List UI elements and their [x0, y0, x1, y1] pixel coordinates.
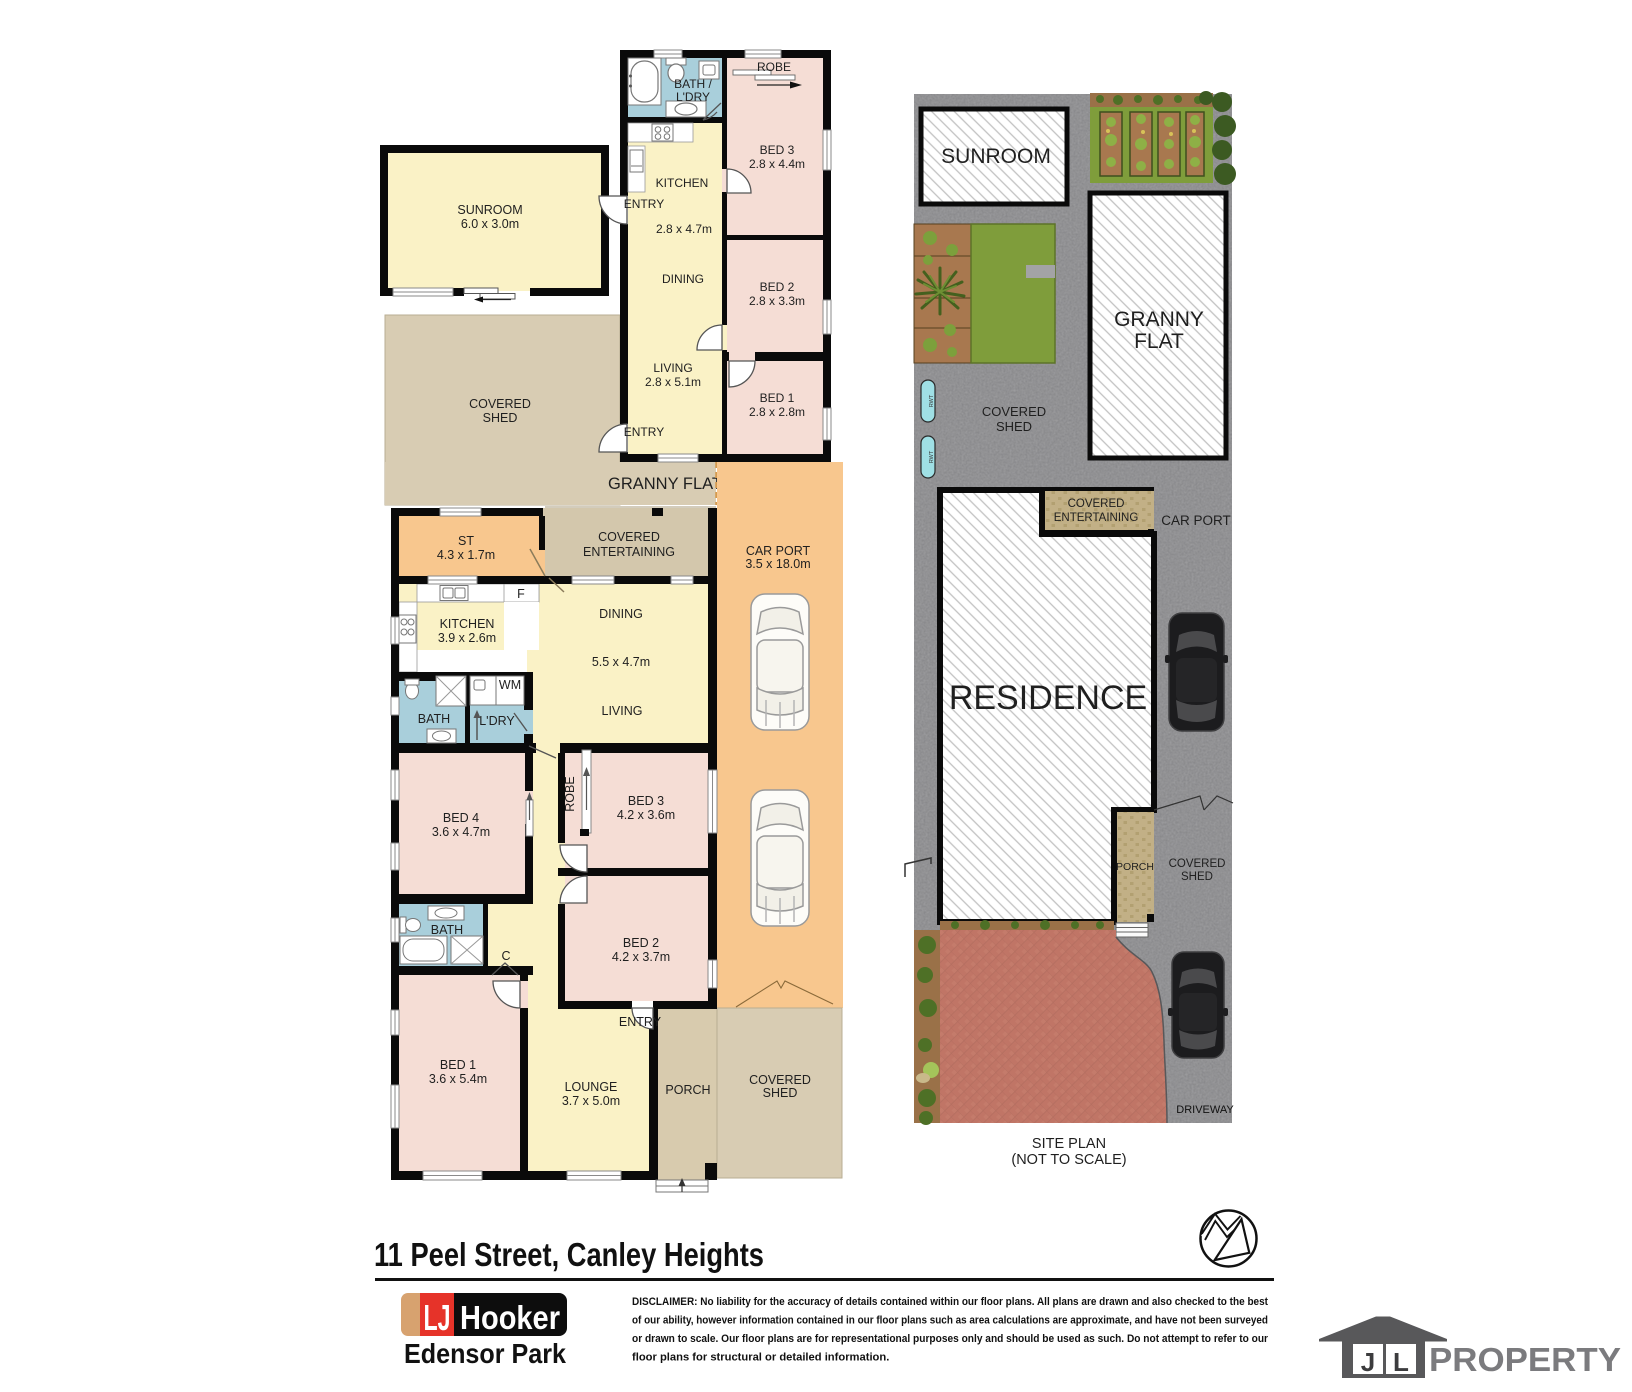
svg-text:ROBE: ROBE [563, 776, 577, 811]
svg-text:3.6 x 5.4m: 3.6 x 5.4m [429, 1072, 487, 1086]
svg-text:RWT: RWT [929, 394, 935, 407]
svg-text:SITE PLAN: SITE PLAN [1032, 1136, 1106, 1152]
svg-text:SUNROOM: SUNROOM [457, 203, 522, 217]
svg-text:COVERED: COVERED [982, 404, 1046, 419]
svg-text:GRANNY FLAT: GRANNY FLAT [608, 475, 722, 493]
svg-text:BATH: BATH [418, 712, 450, 726]
svg-text:BATH: BATH [431, 923, 463, 937]
svg-text:ENTERTAINING: ENTERTAINING [583, 545, 675, 559]
svg-text:LJ: LJ [424, 1297, 451, 1338]
svg-text:floor plans for structural or: floor plans for structural or detailed i… [632, 1352, 889, 1364]
svg-text:BED 1: BED 1 [440, 1058, 476, 1072]
svg-text:C: C [501, 949, 510, 963]
svg-text:4.2 x 3.7m: 4.2 x 3.7m [612, 950, 670, 964]
svg-text:ENTRY: ENTRY [624, 425, 664, 439]
svg-text:4.3 x 1.7m: 4.3 x 1.7m [437, 548, 495, 562]
svg-text:PORCH: PORCH [665, 1083, 710, 1097]
svg-text:3.6 x 4.7m: 3.6 x 4.7m [432, 825, 490, 839]
svg-text:L'DRY: L'DRY [479, 714, 515, 728]
svg-text:RWT: RWT [929, 450, 935, 463]
svg-text:3.5 x 18.0m: 3.5 x 18.0m [745, 557, 810, 571]
svg-text:or drawn to scale. Our floor p: or drawn to scale. Our floor plans are f… [632, 1333, 1269, 1345]
svg-text:COVERED: COVERED [469, 397, 531, 411]
svg-text:ST: ST [458, 534, 474, 548]
svg-text:DINING: DINING [599, 607, 643, 621]
svg-text:SHED: SHED [763, 1086, 798, 1100]
svg-text:GRANNY: GRANNY [1114, 308, 1204, 331]
svg-text:COVERED: COVERED [598, 530, 660, 544]
svg-text:J: J [1361, 1347, 1375, 1377]
svg-text:L'DRY: L'DRY [676, 90, 710, 104]
svg-text:SHED: SHED [996, 419, 1032, 434]
svg-text:5.5 x 4.7m: 5.5 x 4.7m [592, 655, 650, 669]
svg-text:BED 3: BED 3 [760, 143, 795, 157]
svg-text:BED 4: BED 4 [443, 811, 479, 825]
svg-text:RESIDENCE: RESIDENCE [949, 679, 1147, 717]
svg-text:DRIVEWAY: DRIVEWAY [1176, 1104, 1234, 1116]
svg-text:SHED: SHED [483, 411, 518, 425]
svg-text:FLAT: FLAT [1134, 330, 1184, 353]
svg-text:2.8 x 4.4m: 2.8 x 4.4m [749, 157, 805, 171]
svg-text:DINING: DINING [662, 272, 704, 286]
svg-text:LOUNGE: LOUNGE [565, 1080, 618, 1094]
svg-text:2.8 x 4.7m: 2.8 x 4.7m [656, 222, 712, 236]
svg-text:COVERED: COVERED [749, 1073, 811, 1087]
svg-text:COVERED: COVERED [1068, 498, 1125, 510]
svg-text:BED 2: BED 2 [623, 936, 659, 950]
svg-text:BATH /: BATH / [674, 77, 712, 91]
svg-text:3.9 x 2.6m: 3.9 x 2.6m [438, 631, 496, 645]
svg-text:Edensor Park: Edensor Park [404, 1338, 566, 1369]
svg-text:PROPERTY: PROPERTY [1429, 1342, 1621, 1379]
svg-text:ROBE: ROBE [757, 60, 791, 74]
svg-text:ENTRY: ENTRY [619, 1015, 662, 1029]
svg-text:2.8 x 3.3m: 2.8 x 3.3m [749, 294, 805, 308]
svg-text:2.8 x 5.1m: 2.8 x 5.1m [645, 375, 701, 389]
svg-text:COVERED: COVERED [1169, 858, 1226, 870]
svg-text:BED 3: BED 3 [628, 794, 664, 808]
svg-text:KITCHEN: KITCHEN [656, 176, 709, 190]
svg-text:6.0 x 3.0m: 6.0 x 3.0m [461, 217, 519, 231]
svg-text:BED 2: BED 2 [760, 280, 795, 294]
svg-text:DISCLAIMER: No liability for t: DISCLAIMER: No liability for the accurac… [632, 1296, 1268, 1308]
svg-text:(NOT TO SCALE): (NOT TO SCALE) [1011, 1152, 1126, 1168]
svg-text:Hooker: Hooker [460, 1299, 560, 1336]
svg-text:LIVING: LIVING [602, 704, 643, 718]
svg-text:F: F [517, 587, 525, 601]
svg-text:of our ability, however inform: of our ability, however information cont… [632, 1315, 1268, 1327]
svg-text:4.2 x 3.6m: 4.2 x 3.6m [617, 808, 675, 822]
svg-text:3.7 x 5.0m: 3.7 x 5.0m [562, 1094, 620, 1108]
svg-text:SUNROOM: SUNROOM [941, 145, 1051, 168]
svg-text:SHED: SHED [1181, 871, 1213, 883]
svg-text:BED 1: BED 1 [760, 391, 795, 405]
svg-text:L: L [1393, 1347, 1409, 1377]
svg-text:LIVING: LIVING [653, 361, 692, 375]
svg-text:ENTERTAINING: ENTERTAINING [1054, 512, 1139, 524]
svg-text:11 Peel Street, Canley Heights: 11 Peel Street, Canley Heights [374, 1236, 764, 1273]
svg-text:CAR PORT: CAR PORT [746, 544, 811, 558]
svg-text:KITCHEN: KITCHEN [440, 617, 495, 631]
svg-text:2.8 x 2.8m: 2.8 x 2.8m [749, 405, 805, 419]
svg-text:CAR PORT: CAR PORT [1161, 513, 1231, 528]
svg-text:ENTRY: ENTRY [624, 197, 664, 211]
svg-text:PORCH: PORCH [1116, 861, 1154, 873]
svg-text:WM: WM [499, 678, 521, 692]
